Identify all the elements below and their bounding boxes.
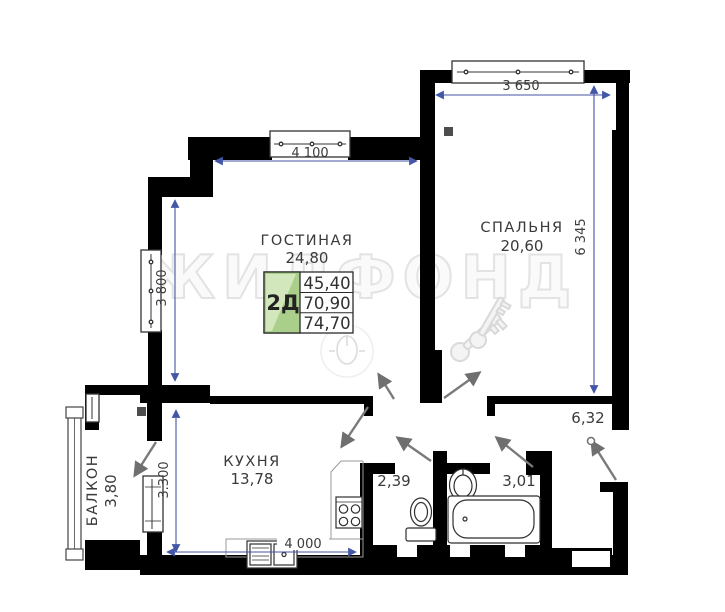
balcony-door	[135, 442, 156, 475]
kitchen-label: КУХНЯ	[223, 454, 281, 470]
wall	[487, 396, 613, 404]
kitchen-door	[342, 407, 368, 446]
riser-dot	[137, 407, 146, 416]
dim-bedroom-height: 6 345	[574, 218, 589, 255]
apartment-type: 2Д	[266, 291, 299, 315]
wall	[348, 137, 430, 160]
table-value-2: 70,90	[303, 294, 350, 313]
bathroom-area: 3,01	[502, 472, 535, 490]
table-value-1: 45,40	[303, 274, 350, 293]
hall-area: 6,32	[571, 409, 604, 427]
wall	[540, 451, 552, 557]
balcony-small-window	[86, 394, 99, 422]
wall	[148, 330, 162, 387]
wall	[616, 70, 629, 134]
dim-bedroom-width: 3 650	[502, 79, 539, 94]
dim-living-height: 3 800	[155, 269, 170, 306]
balcony-label: БАЛКОН	[85, 454, 101, 526]
wall	[148, 177, 213, 197]
entry-door	[588, 438, 617, 481]
stove	[336, 497, 362, 528]
floor-plan-svg: ЖИЛФОНД	[0, 0, 725, 612]
dim-kitchen-width: 4 000	[284, 537, 321, 552]
bedroom-door	[444, 373, 479, 398]
wall	[140, 385, 210, 403]
living-room-door	[379, 375, 394, 399]
toilet	[406, 498, 436, 541]
wc-area: 2,39	[377, 472, 410, 490]
wall	[147, 403, 162, 441]
wall	[487, 396, 495, 416]
bedroom-area: 20,60	[501, 237, 544, 255]
apartment-info-table: 2Д 45,40 70,90 74,70	[264, 272, 353, 333]
riser-dot	[444, 127, 453, 136]
wall	[148, 197, 162, 255]
wall	[600, 482, 613, 492]
bedroom-label: СПАЛЬНЯ	[480, 220, 563, 236]
balcony-area: 3,80	[102, 474, 120, 507]
wall	[612, 130, 629, 430]
floor-plan-image: ЖИЛФОНД	[0, 0, 725, 612]
wall	[85, 540, 140, 570]
wall	[428, 350, 442, 403]
table-value-3: 74,70	[303, 314, 350, 333]
wall	[420, 70, 456, 83]
dim-living-width: 4 100	[291, 146, 328, 161]
dim-kitchen-height: 3.300	[157, 461, 172, 498]
living-room-label: ГОСТИНАЯ	[261, 233, 354, 249]
living-room-area: 24,80	[286, 249, 329, 267]
kitchen-area: 13,78	[231, 470, 274, 488]
bathtub	[448, 496, 540, 543]
wall	[210, 396, 370, 404]
wall	[613, 482, 628, 575]
wc-door	[398, 438, 431, 461]
balcony-glazing	[66, 407, 83, 560]
